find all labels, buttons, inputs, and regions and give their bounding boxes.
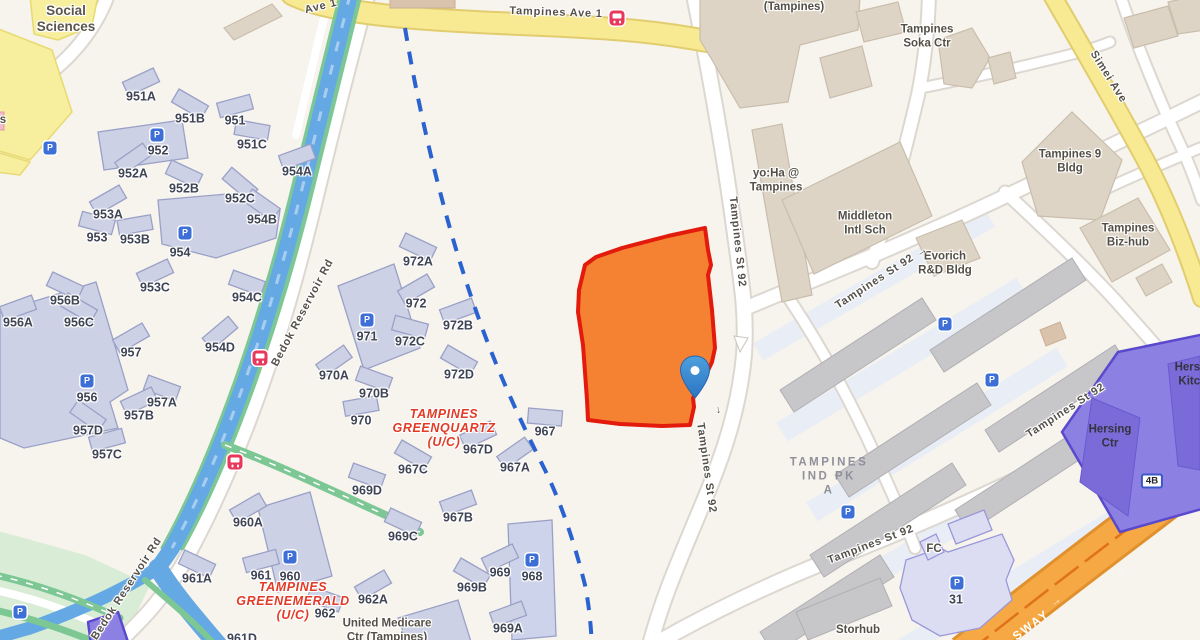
- map-label-967b: 967B: [443, 511, 473, 526]
- map-label-972d: 972D: [444, 368, 474, 383]
- map-label-tampines-9-bldg: Tampines 9 Bldg: [1039, 148, 1101, 175]
- map-label-957: 957: [121, 346, 142, 361]
- road-direction-arrow-icon: →: [712, 404, 726, 417]
- map-label-967c: 967C: [398, 463, 428, 478]
- map-label-971: 971: [357, 330, 378, 345]
- parking-icon: P: [151, 129, 164, 142]
- map-label-969: 969: [490, 566, 511, 581]
- map-label-962: 962: [315, 607, 336, 622]
- map-canvas[interactable]: Social SciencessAve 1Tampines Ave 1(Tamp…: [0, 0, 1200, 640]
- map-label-961: 961: [251, 569, 272, 584]
- map-label-961a: 961A: [182, 572, 212, 587]
- bus-stop-icon: [228, 455, 243, 470]
- map-label-956c: 956C: [64, 316, 94, 331]
- map-graphics: [0, 0, 1200, 640]
- map-label-967d: 967D: [463, 443, 493, 458]
- map-label-954a: 954A: [282, 165, 312, 180]
- building-block-967: [527, 408, 562, 426]
- map-label-972c: 972C: [395, 335, 425, 350]
- map-label-storhub: Storhub: [836, 624, 880, 638]
- parking-icon: P: [986, 374, 999, 387]
- map-label-953c: 953C: [140, 281, 170, 296]
- map-label-hersing-kitche: Hersing Kitche: [1175, 361, 1200, 388]
- map-label-954b: 954B: [247, 213, 277, 228]
- map-label-969d: 969D: [352, 484, 382, 499]
- map-label-961d: 961D: [227, 632, 257, 640]
- map-label-fc: FC: [926, 543, 941, 557]
- map-label-962a: 962A: [358, 593, 388, 608]
- parking-icon: P: [44, 142, 57, 155]
- map-label-951b: 951B: [175, 112, 205, 127]
- map-label-956b: 956B: [50, 294, 80, 309]
- map-label-960: 960: [280, 570, 301, 585]
- map-label-s: s: [0, 114, 6, 128]
- map-label-952: 952: [148, 144, 169, 159]
- map-label-953b: 953B: [120, 233, 150, 248]
- map-label-4b: 4B: [1141, 474, 1163, 489]
- map-label-951: 951: [225, 114, 246, 129]
- boundary-dashed-line: [405, 28, 592, 640]
- map-label-tampines: (Tampines): [764, 1, 825, 15]
- map-label-957c: 957C: [92, 448, 122, 463]
- parking-icon: P: [14, 606, 27, 619]
- map-label-951a: 951A: [126, 90, 156, 105]
- map-label-951c: 951C: [237, 138, 267, 153]
- map-label-952c: 952C: [225, 192, 255, 207]
- map-label-united-medicare-ctr-tampines: United Medicare Ctr (Tampines): [343, 617, 432, 640]
- map-label-970b: 970B: [359, 387, 389, 402]
- map-label-972b: 972B: [443, 319, 473, 334]
- map-label-954: 954: [170, 246, 191, 261]
- parking-icon: P: [951, 577, 964, 590]
- parking-icon: P: [284, 551, 297, 564]
- map-label-952a: 952A: [118, 167, 148, 182]
- map-label-tampines-soka-ctr: Tampines Soka Ctr: [901, 23, 954, 50]
- map-label-954d: 954D: [205, 341, 235, 356]
- map-label-969c: 969C: [388, 530, 418, 545]
- parking-icon: P: [842, 506, 855, 519]
- map-label-yo-ha-tampines: yo:Ha @ Tampines: [750, 167, 803, 194]
- map-label-967: 967: [535, 425, 556, 440]
- parking-icon: P: [81, 375, 94, 388]
- map-label-middleton-intl-sch: Middleton Intl Sch: [838, 210, 892, 237]
- map-label-954c: 954C: [232, 291, 262, 306]
- map-label-952b: 952B: [169, 182, 199, 197]
- parking-icon: P: [526, 554, 539, 567]
- map-label-970a: 970A: [319, 369, 349, 384]
- map-label-social-sciences: Social Sciences: [37, 3, 96, 35]
- map-label-hersing-ctr: Hersing Ctr: [1089, 423, 1132, 450]
- map-label-31: 31: [949, 593, 963, 608]
- map-label-957d: 957D: [73, 424, 103, 439]
- map-label-967a: 967A: [500, 461, 530, 476]
- map-label-972a: 972A: [403, 255, 433, 270]
- bus-stop-icon: [610, 11, 625, 26]
- map-label-tampines-ind-pk-a: TAMPINES IND PK A: [790, 456, 869, 497]
- parking-icon: P: [939, 318, 952, 331]
- map-label-957b: 957B: [124, 409, 154, 424]
- map-label-969b: 969B: [457, 581, 487, 596]
- map-label-969a: 969A: [493, 622, 523, 637]
- bus-stop-icon: [253, 351, 268, 366]
- map-label-956a: 956A: [3, 316, 33, 331]
- parking-icon: P: [179, 227, 192, 240]
- map-label-953: 953: [87, 231, 108, 246]
- map-label-tampines-biz-hub: Tampines Biz-hub: [1102, 222, 1155, 249]
- map-label-956: 956: [77, 391, 98, 406]
- map-label-970: 970: [351, 414, 372, 429]
- map-label-972: 972: [406, 297, 427, 312]
- map-label-953a: 953A: [93, 208, 123, 223]
- map-label-968: 968: [522, 570, 543, 585]
- parking-icon: P: [361, 314, 374, 327]
- map-label-960a: 960A: [233, 516, 263, 531]
